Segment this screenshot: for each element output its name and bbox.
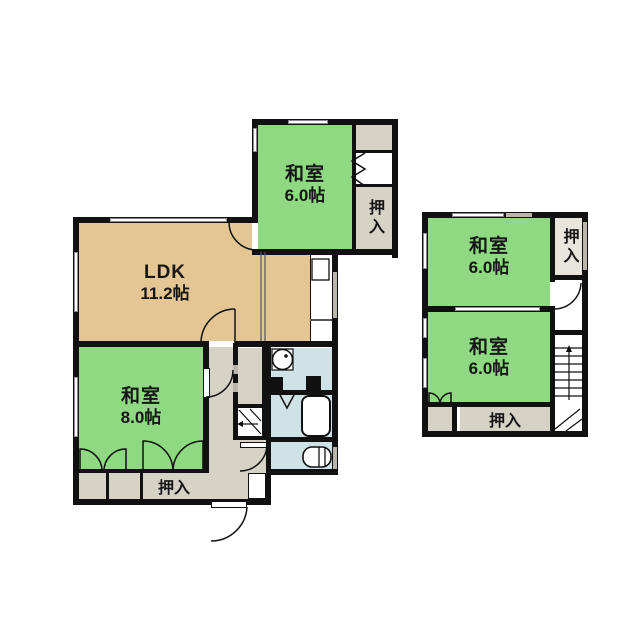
floorplan-canvas: 和室 6.0帖 LDK 11.2帖 和室 8.0帖 押入 押入 和室 6.0帖 … xyxy=(0,0,640,640)
door-arc xyxy=(206,370,233,397)
closet-label-1f-topright: 押入 xyxy=(356,190,392,246)
partition-line xyxy=(261,252,265,341)
door-arc xyxy=(229,222,257,250)
room-size: 6.0帖 xyxy=(469,258,510,279)
room-size: 6.0帖 xyxy=(469,359,510,380)
bifold-door-mark xyxy=(352,153,365,186)
folding-door-mark xyxy=(280,395,294,408)
fixtures-and-doors-layer xyxy=(0,0,640,640)
closet-door-arc xyxy=(173,441,203,471)
toilet xyxy=(303,447,331,467)
room-label-washitsu-2f-upper: 和室 6.0帖 xyxy=(428,226,550,288)
room-label-washitsu-6-1f: 和室 6.0帖 xyxy=(258,150,352,220)
closet-label-2f-bottom: 押入 xyxy=(460,408,550,430)
kitchen-sink xyxy=(312,259,329,280)
closet-name: 押入 xyxy=(158,474,190,498)
washbasin xyxy=(273,350,293,370)
room-name: 和室 xyxy=(469,235,509,258)
closet-door-arc xyxy=(143,441,173,471)
room-label-washitsu-2f-lower: 和室 6.0帖 xyxy=(428,327,550,389)
room-size: 8.0帖 xyxy=(121,408,162,429)
closet-name: 押入 xyxy=(557,228,581,266)
washbasin-faucet xyxy=(284,354,288,358)
bathtub xyxy=(302,396,330,436)
room-name: LDK xyxy=(144,261,186,284)
door-arc xyxy=(211,507,247,541)
closet-door-arc xyxy=(429,393,440,404)
stairs-winder xyxy=(555,409,582,431)
closet-door-arc xyxy=(104,449,126,471)
stairs-arrow-head xyxy=(237,421,243,427)
room-label-ldk: LDK 11.2帖 xyxy=(100,248,230,318)
closet-door-arc xyxy=(80,449,102,471)
closet-name: 押入 xyxy=(362,199,386,237)
closet-name: 押入 xyxy=(489,407,521,431)
room-label-washitsu-8-1f: 和室 8.0帖 xyxy=(79,372,203,442)
closet-label-1f-bottom: 押入 xyxy=(143,475,205,497)
room-name: 和室 xyxy=(121,385,161,408)
door-arc xyxy=(240,445,267,471)
closet-door-arc xyxy=(440,393,451,404)
room-size: 6.0帖 xyxy=(285,186,326,207)
room-name: 和室 xyxy=(469,336,509,359)
closet-label-2f-top: 押入 xyxy=(555,220,582,274)
door-arc xyxy=(555,283,581,309)
room-name: 和室 xyxy=(285,163,325,186)
room-size: 11.2帖 xyxy=(140,284,189,305)
